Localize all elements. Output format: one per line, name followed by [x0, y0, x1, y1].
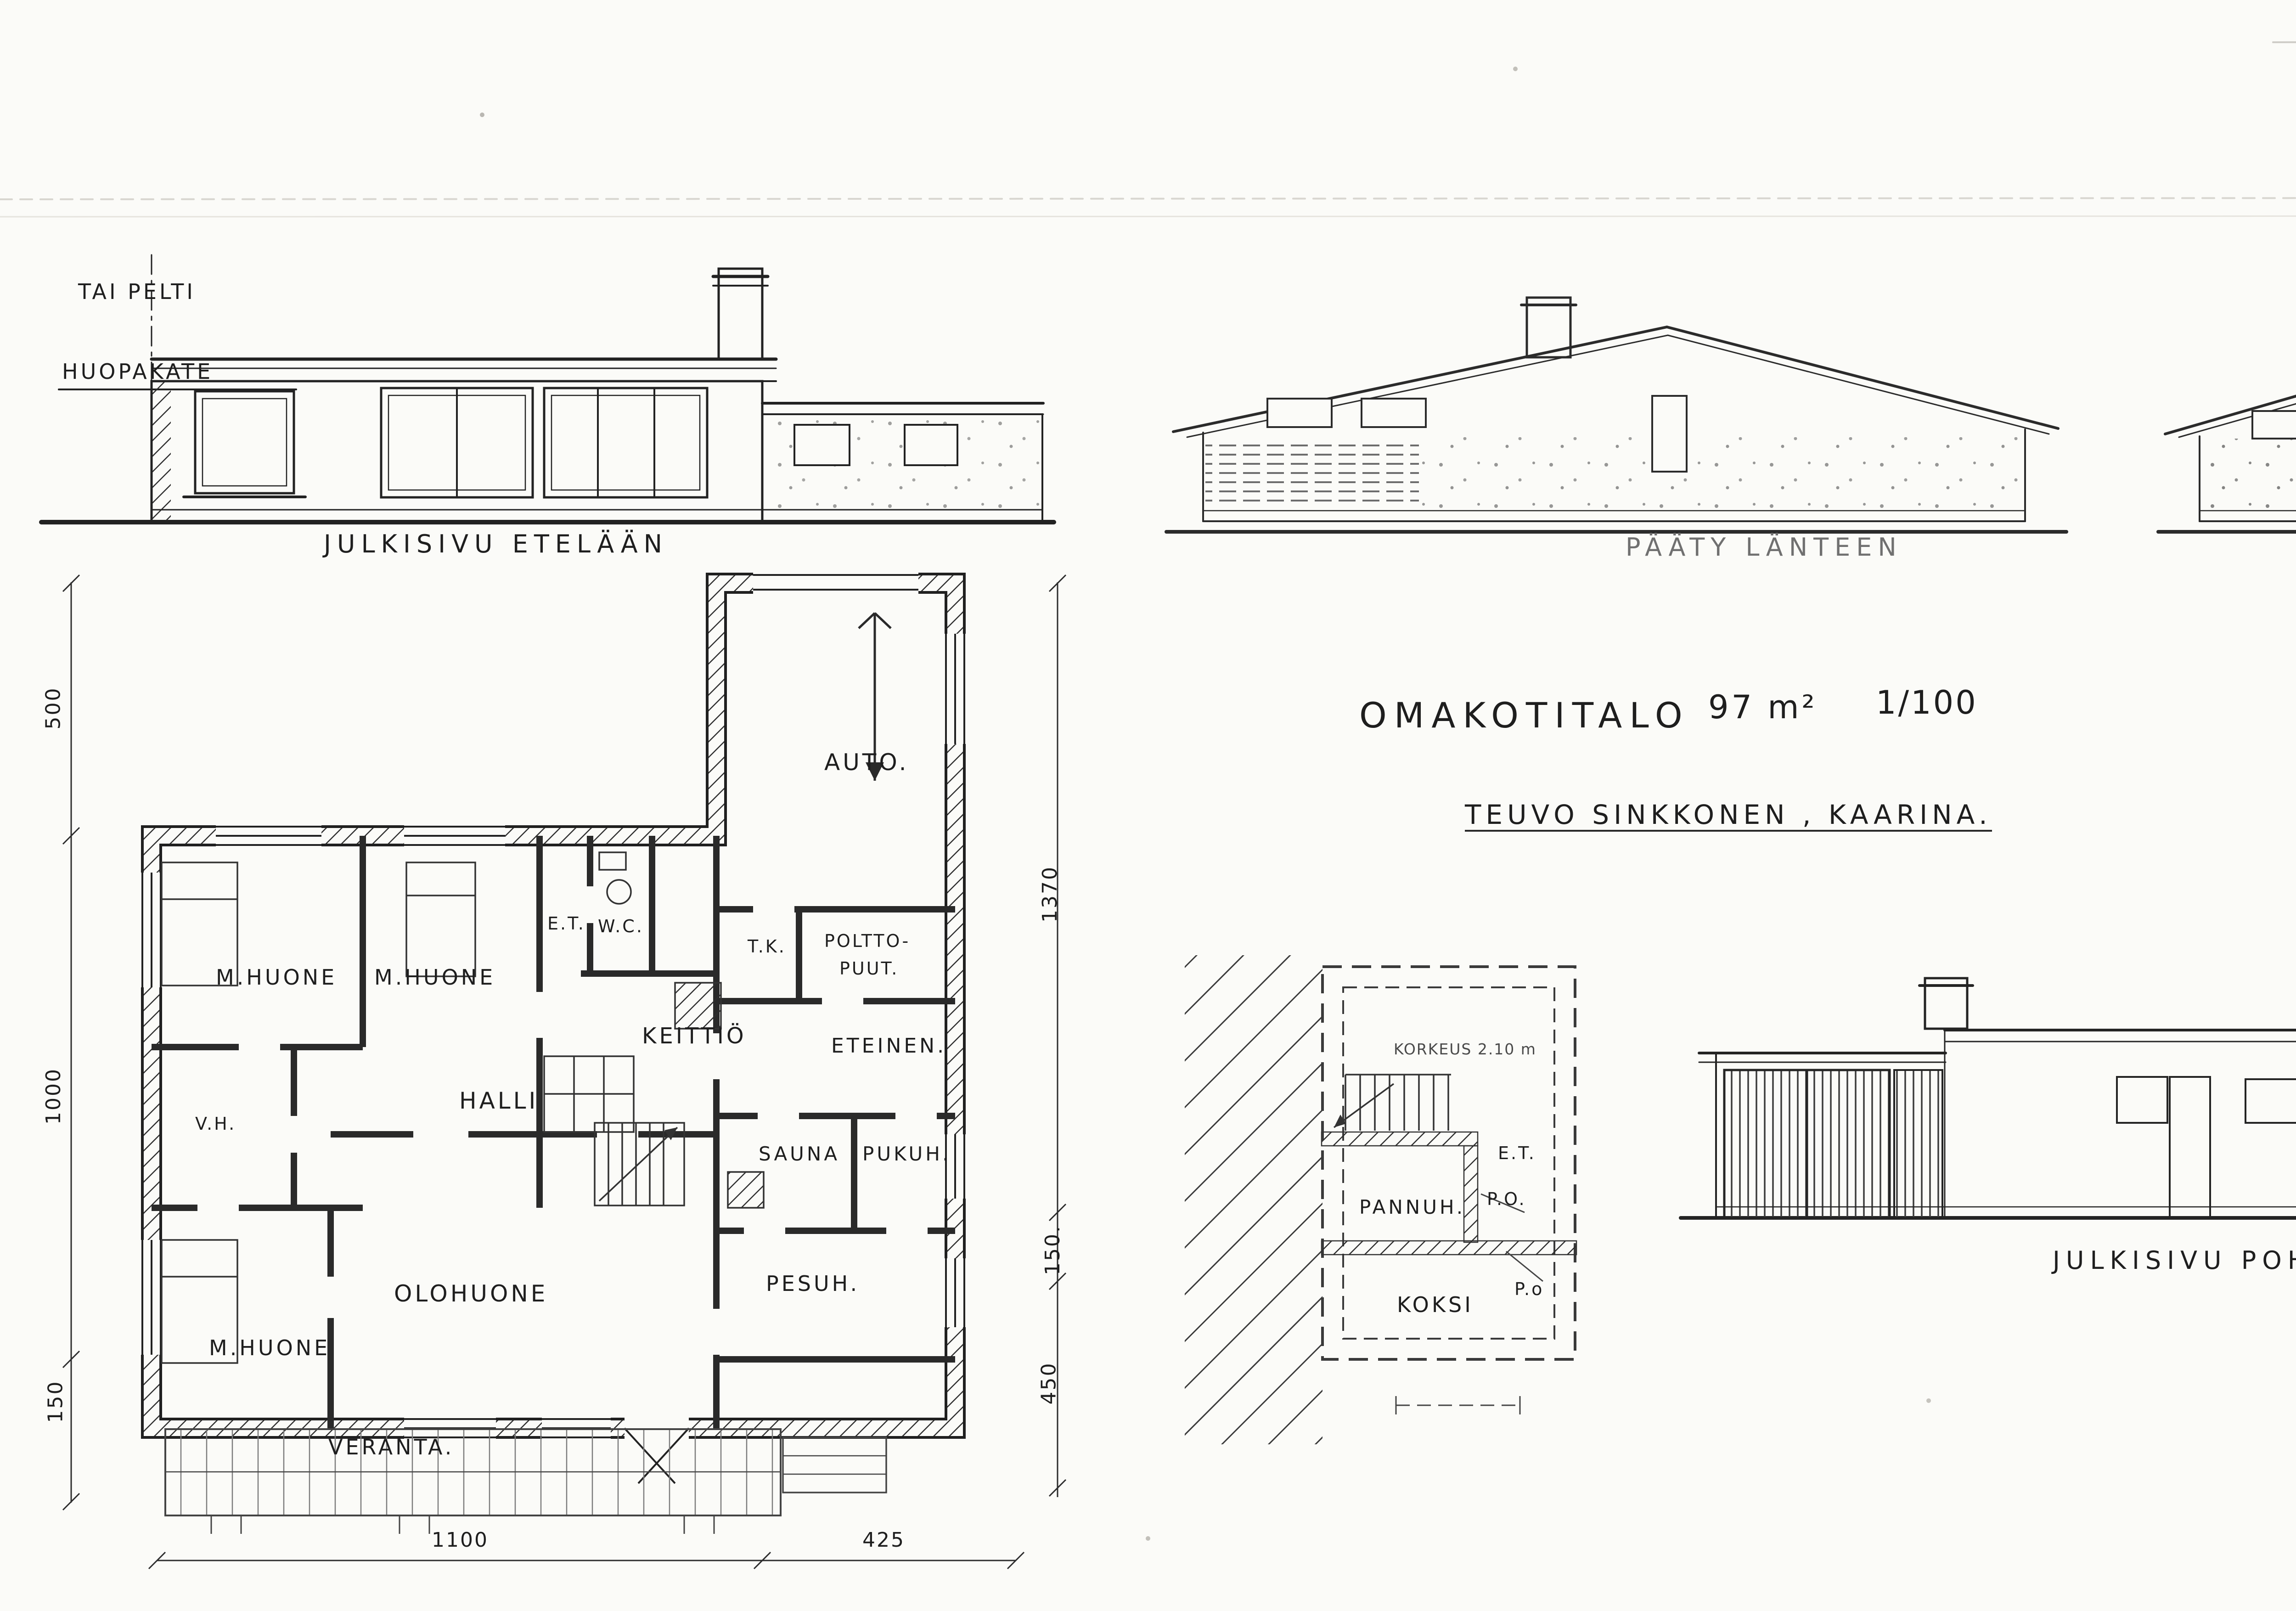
client-name: TEUVO SINKKONEN , KAARINA. [1465, 801, 1992, 832]
basement-coke-store: KOKSI [1397, 1294, 1474, 1315]
basement-po-lower: P.o [1514, 1280, 1544, 1298]
room-fuel-line1: POLTTO- [824, 932, 910, 950]
room-garage: AUTO. [824, 751, 909, 774]
room-cold-storage: T.K. [748, 938, 786, 955]
dim-bottom-side: 425 [862, 1530, 905, 1550]
north-elevation-drawing [1681, 978, 2296, 1218]
dim-bottom-main: 1100 [432, 1530, 489, 1550]
dim-left-top: 500 [43, 687, 63, 730]
room-bedroom2: M.HUONE [374, 967, 495, 988]
room-closet: V.H. [195, 1115, 236, 1132]
room-wash: PESUH. [766, 1273, 860, 1294]
room-bedroom1: M.HUONE [216, 967, 337, 988]
basement-entry: E.T. [1498, 1144, 1536, 1162]
south-elevation-title: JULKISIVU ETELÄÄN [324, 532, 668, 557]
dim-left-mid: 1000 [44, 1068, 64, 1125]
note-roof-alt: TAI PELTI [78, 281, 196, 302]
note-roof-material: HUOPAKATE [62, 361, 213, 382]
dim-right-low: 450 [1039, 1362, 1059, 1405]
project-scale: 1/100 [1876, 687, 1978, 719]
room-entry: E.T. [547, 915, 585, 932]
room-dressing: PUKUH. [862, 1144, 951, 1164]
blueprint-sheet: TAI PELTI HUOPAKATE JULKISIVU ETELÄÄN PÄ… [0, 0, 2296, 1611]
room-kitchen: KEITTIÖ [642, 1025, 747, 1047]
room-sauna: SAUNA [759, 1144, 840, 1164]
floor-plan-drawing [63, 575, 1066, 1569]
north-elevation-title: JULKISIVU POHJOISEEN [2053, 1248, 2296, 1273]
room-living: OLOHUONE [394, 1282, 548, 1305]
room-wc: W.C. [598, 918, 644, 935]
basement-boiler-room: PANNUH. [1359, 1198, 1465, 1217]
basement-po-upper: P.O. [1487, 1190, 1526, 1208]
scan-artifacts [0, 40, 2296, 1541]
project-area: 97 m² [1708, 691, 1818, 723]
east-gable-drawing [2158, 294, 2296, 535]
dim-right-top: 1370 [1040, 866, 1060, 923]
room-hall: HALLI [459, 1089, 538, 1112]
room-vestibule: ETEINEN. [831, 1036, 946, 1056]
project-title: OMAKOTITALO [1359, 698, 1690, 733]
west-gable-drawing [1166, 298, 2066, 532]
west-gable-title: PÄÄTY LÄNTEEN [1626, 535, 1902, 560]
room-bedroom3: M.HUONE [209, 1337, 330, 1358]
dim-left-low: 150 [45, 1380, 66, 1423]
basement-height-note: KORKEUS 2.10 m [1394, 1042, 1536, 1057]
room-fuel-line2: PUUT. [839, 960, 899, 977]
dim-right-mid: 150. [1043, 1225, 1063, 1275]
room-veranda: VERANTA. [328, 1436, 454, 1458]
